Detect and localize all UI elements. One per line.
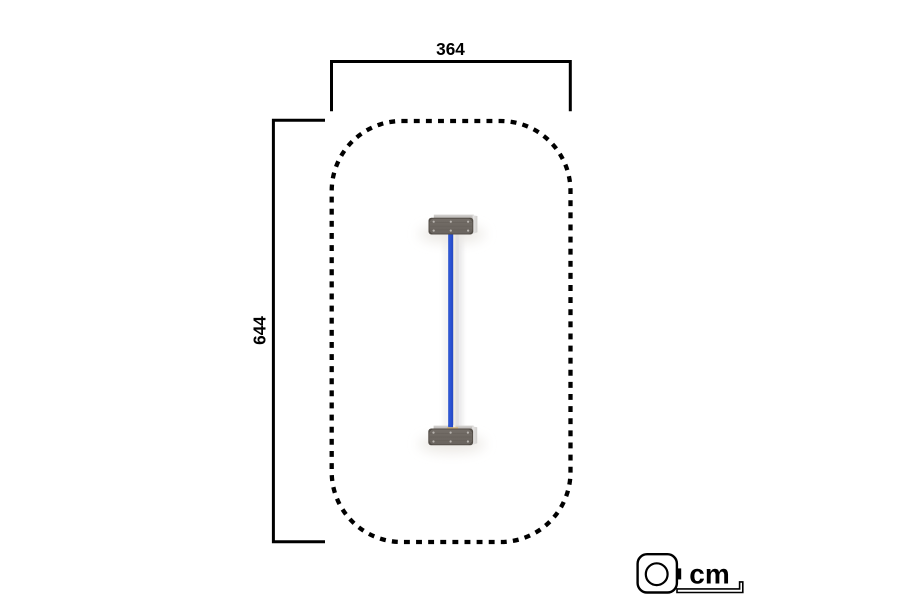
svg-text:644: 644 bbox=[249, 316, 269, 345]
svg-text:364: 364 bbox=[436, 39, 465, 59]
svg-text:cm: cm bbox=[689, 558, 729, 589]
